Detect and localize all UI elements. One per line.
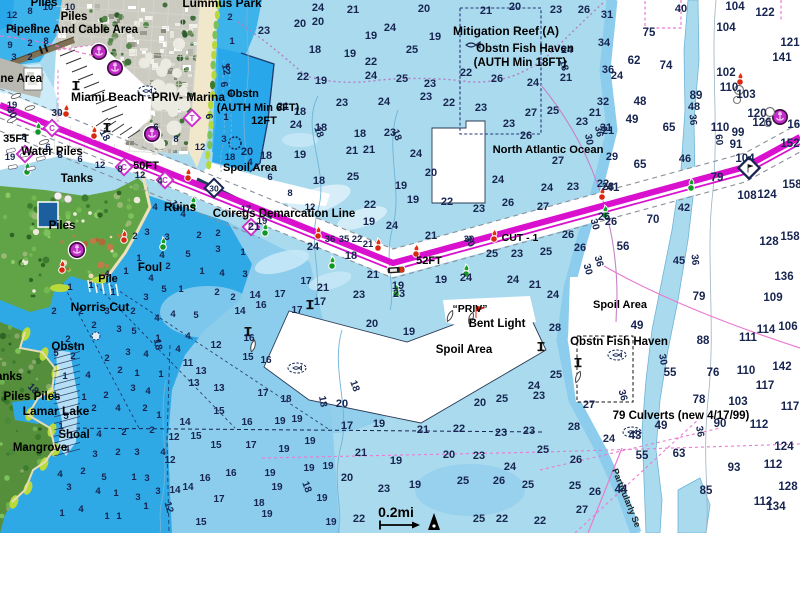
svg-text:128: 128	[759, 236, 779, 248]
svg-text:12: 12	[164, 455, 176, 466]
svg-text:19: 19	[325, 517, 337, 528]
svg-text:55: 55	[636, 450, 649, 462]
svg-text:Obstn: Obstn	[227, 88, 259, 100]
svg-text:99: 99	[732, 127, 745, 139]
svg-text:Foul: Foul	[138, 262, 162, 274]
svg-text:76: 76	[707, 367, 720, 379]
svg-text:24: 24	[410, 148, 423, 160]
svg-text:23: 23	[424, 78, 436, 90]
svg-text:4: 4	[115, 403, 121, 414]
svg-text:19: 19	[316, 493, 328, 504]
svg-text:18: 18	[313, 175, 325, 187]
svg-text:16: 16	[260, 355, 272, 366]
svg-text:26: 26	[493, 475, 505, 487]
svg-text:15: 15	[195, 517, 207, 528]
svg-text:142: 142	[772, 361, 791, 373]
svg-text:4: 4	[78, 504, 84, 515]
svg-text:13: 13	[195, 366, 207, 377]
svg-text:Obstn Fish Haven: Obstn Fish Haven	[476, 43, 574, 55]
svg-text:88: 88	[697, 335, 710, 347]
svg-text:26: 26	[502, 197, 514, 209]
svg-text:3: 3	[125, 347, 130, 358]
svg-text:23: 23	[550, 4, 562, 16]
svg-text:17: 17	[274, 289, 286, 300]
svg-text:21: 21	[346, 145, 358, 157]
svg-text:Shoal: Shoal	[58, 429, 89, 441]
svg-text:158: 158	[780, 231, 800, 243]
svg-text:20: 20	[366, 318, 378, 330]
svg-text:5: 5	[131, 326, 137, 337]
svg-text:108: 108	[737, 190, 757, 202]
svg-text:26: 26	[491, 73, 503, 85]
svg-text:56: 56	[617, 241, 630, 253]
svg-text:24: 24	[492, 174, 505, 186]
svg-text:3: 3	[92, 449, 97, 460]
svg-text:2: 2	[121, 427, 126, 438]
svg-text:(AUTH Min 18FT): (AUTH Min 18FT)	[474, 57, 567, 69]
svg-text:20: 20	[336, 398, 348, 410]
svg-text:20: 20	[474, 397, 486, 409]
svg-text:79 Culverts (new 4/17/99): 79 Culverts (new 4/17/99)	[613, 410, 750, 422]
svg-text:112: 112	[750, 419, 769, 431]
svg-text:T: T	[190, 114, 195, 123]
svg-text:“PRIV”: “PRIV”	[452, 303, 487, 315]
svg-text:36: 36	[687, 114, 699, 126]
svg-text:26: 26	[578, 4, 590, 16]
svg-text:30: 30	[51, 108, 63, 119]
svg-text:23: 23	[495, 427, 507, 439]
svg-text:23: 23	[473, 450, 485, 462]
svg-text:23: 23	[533, 390, 545, 402]
svg-text:134: 134	[766, 501, 786, 513]
svg-text:25: 25	[547, 105, 559, 117]
svg-text:North Atlantic Ocean: North Atlantic Ocean	[493, 144, 604, 156]
svg-text:1: 1	[104, 511, 110, 522]
svg-text:19: 19	[363, 216, 375, 228]
svg-text:18: 18	[309, 44, 321, 56]
svg-text:4: 4	[157, 176, 163, 187]
svg-text:25: 25	[550, 369, 562, 381]
svg-text:4: 4	[185, 331, 191, 342]
svg-text:20: 20	[509, 1, 521, 13]
svg-text:109: 109	[763, 292, 782, 304]
svg-text:120: 120	[747, 108, 766, 120]
svg-text:40: 40	[675, 3, 687, 15]
svg-text:19: 19	[291, 414, 303, 425]
svg-text:2: 2	[214, 287, 219, 298]
svg-text:104: 104	[735, 153, 755, 165]
svg-text:Bent Light: Bent Light	[469, 318, 526, 330]
svg-text:Obstn: Obstn	[51, 341, 84, 353]
svg-text:17: 17	[314, 296, 326, 308]
svg-text:17: 17	[300, 276, 312, 287]
svg-text:Tanks: Tanks	[0, 371, 22, 383]
svg-text:23: 23	[473, 203, 485, 215]
svg-text:75: 75	[643, 27, 656, 39]
svg-text:16: 16	[241, 417, 253, 428]
svg-text:26: 26	[520, 130, 532, 142]
svg-text:22: 22	[460, 67, 472, 79]
svg-text:1: 1	[158, 369, 164, 380]
svg-text:8: 8	[173, 134, 178, 145]
svg-text:35FT: 35FT	[3, 133, 29, 145]
svg-text:4: 4	[57, 469, 63, 480]
svg-text:12: 12	[195, 142, 206, 153]
svg-text:9: 9	[7, 40, 12, 51]
svg-text:49: 49	[631, 320, 644, 332]
svg-text:3: 3	[130, 383, 135, 394]
svg-text:Lummus Park: Lummus Park	[182, 0, 262, 10]
svg-text:26: 26	[574, 242, 586, 254]
svg-text:2: 2	[91, 403, 96, 414]
svg-text:13: 13	[213, 383, 225, 394]
svg-text:28: 28	[568, 421, 580, 433]
svg-text:24: 24	[290, 119, 303, 131]
svg-text:24: 24	[384, 22, 397, 34]
svg-text:19: 19	[278, 444, 290, 455]
svg-text:15: 15	[213, 406, 225, 417]
svg-text:23: 23	[336, 97, 348, 109]
svg-text:5: 5	[185, 249, 191, 260]
svg-text:24: 24	[312, 2, 325, 14]
svg-text:19: 19	[5, 152, 16, 163]
svg-text:20: 20	[341, 472, 353, 484]
svg-text:22: 22	[441, 196, 453, 208]
svg-text:2: 2	[103, 390, 108, 401]
svg-text:25: 25	[537, 444, 549, 456]
svg-text:20: 20	[312, 16, 324, 28]
svg-text:24: 24	[603, 433, 616, 445]
svg-text:110: 110	[737, 365, 756, 377]
svg-text:27: 27	[552, 155, 564, 167]
svg-text:22: 22	[352, 234, 363, 245]
svg-text:19: 19	[294, 149, 306, 161]
svg-text:21: 21	[317, 282, 329, 294]
svg-text:2: 2	[27, 52, 32, 63]
svg-text:19: 19	[322, 461, 334, 472]
svg-text:24: 24	[378, 96, 391, 108]
svg-text:19: 19	[429, 31, 441, 43]
svg-text:18: 18	[280, 394, 292, 405]
svg-text:45: 45	[673, 255, 685, 267]
svg-text:14: 14	[234, 306, 246, 317]
svg-text:25: 25	[473, 513, 485, 525]
svg-text:104: 104	[716, 22, 736, 34]
svg-text:Ruins: Ruins	[164, 202, 196, 214]
svg-text:46: 46	[679, 153, 691, 165]
svg-text:141: 141	[772, 52, 792, 64]
svg-text:17: 17	[245, 440, 257, 451]
svg-text:112: 112	[764, 459, 783, 471]
svg-text:48: 48	[634, 96, 647, 108]
svg-text:122: 122	[755, 7, 774, 19]
svg-text:24: 24	[561, 44, 573, 56]
svg-text:1: 1	[199, 266, 205, 277]
svg-text:Lamar Lake: Lamar Lake	[23, 404, 90, 418]
svg-text:2: 2	[91, 320, 96, 331]
svg-text:Mangrove: Mangrove	[13, 442, 67, 454]
svg-text:117: 117	[756, 380, 775, 392]
svg-text:27: 27	[537, 201, 549, 213]
svg-text:18: 18	[345, 250, 357, 262]
svg-text:25: 25	[406, 44, 418, 56]
svg-text:4: 4	[95, 486, 101, 497]
svg-text:24: 24	[527, 77, 540, 89]
svg-text:114: 114	[757, 324, 776, 336]
svg-text:15: 15	[190, 431, 202, 442]
svg-text:85: 85	[700, 485, 713, 497]
svg-text:19: 19	[403, 326, 415, 338]
svg-text:25: 25	[457, 475, 469, 487]
svg-text:111: 111	[739, 332, 758, 344]
svg-text:21: 21	[367, 269, 379, 281]
svg-text:19: 19	[304, 436, 316, 447]
svg-text:62: 62	[628, 55, 641, 67]
svg-text:31: 31	[601, 9, 613, 21]
svg-text:11: 11	[183, 358, 194, 369]
svg-text:5: 5	[193, 310, 199, 321]
svg-text:2: 2	[104, 353, 109, 364]
svg-text:20: 20	[425, 167, 437, 179]
svg-text:23: 23	[567, 181, 579, 193]
svg-text:3: 3	[144, 473, 149, 484]
svg-text:Water Piles: Water Piles	[21, 146, 83, 158]
svg-text:2: 2	[142, 403, 147, 414]
svg-text:24: 24	[541, 182, 554, 194]
svg-text:19: 19	[274, 416, 286, 427]
svg-text:22: 22	[443, 97, 455, 109]
svg-text:2: 2	[27, 38, 32, 49]
svg-text:19: 19	[264, 468, 276, 479]
svg-text:21: 21	[417, 424, 429, 436]
svg-text:27: 27	[576, 504, 588, 516]
svg-text:3: 3	[215, 244, 220, 255]
svg-text:124: 124	[774, 441, 794, 453]
svg-text:1: 1	[88, 280, 94, 291]
svg-text:19: 19	[365, 30, 377, 42]
svg-text:2: 2	[51, 306, 56, 317]
svg-text:1: 1	[62, 371, 68, 382]
svg-text:93: 93	[728, 462, 741, 474]
svg-text:117: 117	[781, 401, 800, 413]
svg-text:25: 25	[496, 393, 508, 405]
svg-text:2: 2	[117, 365, 122, 376]
svg-text:22: 22	[353, 513, 365, 525]
svg-text:36: 36	[602, 64, 614, 76]
svg-text:2: 2	[149, 425, 154, 436]
svg-text:21: 21	[363, 144, 375, 156]
svg-text:16: 16	[243, 333, 255, 344]
svg-text:3: 3	[116, 324, 121, 335]
svg-text:Norris Cut: Norris Cut	[71, 300, 130, 314]
svg-text:128: 128	[778, 481, 798, 493]
svg-text:5: 5	[101, 472, 107, 483]
svg-text:1: 1	[240, 247, 246, 258]
svg-text:4: 4	[170, 309, 176, 320]
svg-text:12: 12	[95, 160, 106, 171]
svg-text:44: 44	[615, 484, 628, 496]
svg-text:42: 42	[678, 202, 690, 214]
svg-text:C: C	[49, 124, 55, 133]
svg-text:3: 3	[11, 52, 16, 63]
svg-text:27: 27	[583, 399, 595, 411]
svg-text:27: 27	[525, 107, 537, 119]
svg-text:65: 65	[663, 122, 676, 134]
svg-text:103: 103	[728, 396, 747, 408]
svg-text:4: 4	[96, 429, 102, 440]
svg-text:3: 3	[66, 482, 71, 493]
svg-text:121: 121	[780, 37, 800, 49]
svg-text:16: 16	[225, 468, 237, 479]
svg-text:48: 48	[688, 101, 700, 113]
svg-text:17: 17	[341, 420, 353, 432]
svg-text:17: 17	[213, 494, 225, 505]
svg-text:2: 2	[132, 231, 137, 242]
svg-text:70: 70	[647, 214, 660, 226]
svg-text:136: 136	[774, 271, 793, 283]
svg-text:14: 14	[179, 417, 191, 428]
svg-text:ane Area: ane Area	[0, 73, 43, 85]
svg-text:21: 21	[347, 4, 359, 16]
svg-text:12FT: 12FT	[251, 115, 277, 127]
svg-text:52FT: 52FT	[416, 255, 442, 267]
svg-text:19: 19	[435, 274, 447, 286]
svg-text:4: 4	[159, 250, 165, 261]
svg-text:3: 3	[134, 447, 139, 458]
svg-text:18: 18	[260, 150, 272, 162]
svg-text:1: 1	[59, 508, 65, 519]
svg-text:32: 32	[597, 96, 609, 108]
svg-text:19: 19	[303, 463, 315, 474]
svg-text:106: 106	[778, 321, 797, 333]
svg-text:124: 124	[757, 189, 777, 201]
svg-text:Tanks: Tanks	[61, 173, 93, 185]
svg-text:22: 22	[365, 56, 377, 68]
svg-text:5: 5	[161, 284, 167, 295]
svg-text:2: 2	[80, 466, 85, 477]
svg-text:Piles: Piles	[31, 0, 58, 9]
svg-text:Obstn Fish Haven: Obstn Fish Haven	[570, 336, 668, 348]
svg-text:28: 28	[602, 181, 614, 193]
svg-text:22: 22	[496, 513, 508, 525]
svg-text:19: 19	[407, 194, 419, 206]
svg-text:21: 21	[425, 230, 437, 242]
svg-text:3: 3	[164, 232, 169, 243]
svg-text:12: 12	[168, 432, 180, 443]
svg-text:6: 6	[153, 122, 158, 133]
svg-text:20: 20	[443, 449, 455, 461]
svg-text:21: 21	[529, 279, 541, 291]
svg-text:23: 23	[393, 288, 405, 300]
svg-text:1: 1	[110, 287, 116, 298]
svg-text:34: 34	[598, 37, 611, 49]
svg-text:20: 20	[294, 18, 306, 30]
svg-text:24: 24	[386, 220, 399, 232]
svg-text:16: 16	[199, 473, 211, 484]
svg-text:23: 23	[475, 102, 487, 114]
svg-text:0.2mi: 0.2mi	[378, 504, 414, 520]
svg-text:19: 19	[344, 48, 356, 60]
svg-text:24: 24	[460, 272, 473, 284]
svg-text:23: 23	[353, 289, 365, 301]
svg-text:19: 19	[409, 479, 421, 491]
svg-text:21: 21	[363, 239, 374, 250]
svg-text:25: 25	[569, 480, 581, 492]
svg-text:60: 60	[713, 134, 725, 146]
svg-text:2: 2	[215, 228, 220, 239]
svg-text:CUT - 1: CUT - 1	[502, 232, 539, 244]
svg-text:29: 29	[606, 151, 618, 163]
svg-text:1: 1	[131, 472, 137, 483]
svg-text:24: 24	[507, 274, 520, 286]
svg-text:4: 4	[145, 386, 151, 397]
svg-text:21: 21	[589, 107, 601, 119]
svg-text:43: 43	[629, 430, 642, 442]
svg-text:22: 22	[534, 515, 546, 527]
svg-text:23: 23	[523, 425, 535, 437]
svg-text:3: 3	[135, 492, 140, 503]
svg-text:22: 22	[453, 423, 465, 435]
svg-text:17: 17	[291, 305, 303, 316]
svg-text:74: 74	[660, 60, 673, 72]
svg-text:20: 20	[418, 3, 430, 15]
svg-text:Piles: Piles	[61, 11, 88, 23]
svg-text:Spoil Area: Spoil Area	[593, 299, 648, 311]
svg-text:16: 16	[255, 300, 267, 311]
svg-text:2: 2	[130, 306, 135, 317]
svg-text:1: 1	[178, 284, 184, 295]
svg-text:Pipeline And Cable Area: Pipeline And Cable Area	[6, 24, 139, 36]
svg-text:Piles Piles: Piles Piles	[4, 391, 61, 403]
svg-text:25: 25	[486, 248, 498, 260]
svg-text:C: C	[162, 176, 168, 185]
svg-text:8: 8	[43, 36, 48, 47]
svg-text:158: 158	[782, 179, 800, 191]
svg-text:22: 22	[364, 199, 376, 211]
svg-text:24: 24	[307, 241, 320, 253]
svg-text:104: 104	[725, 1, 745, 13]
svg-text:Piles: Piles	[49, 220, 76, 232]
svg-text:18: 18	[253, 498, 265, 509]
svg-text:2: 2	[196, 230, 201, 241]
svg-text:23: 23	[503, 118, 515, 130]
svg-text:1: 1	[156, 410, 162, 421]
svg-text:14: 14	[169, 485, 181, 496]
svg-text:Pile: Pile	[98, 273, 118, 285]
svg-text:25: 25	[522, 479, 534, 491]
svg-text:65: 65	[634, 159, 647, 171]
svg-text:63: 63	[673, 448, 686, 460]
svg-text:19: 19	[395, 180, 407, 192]
svg-text:15: 15	[242, 352, 254, 363]
svg-text:19: 19	[390, 455, 402, 467]
svg-text:Miami Beach -PRIV- Marina: Miami Beach -PRIV- Marina	[71, 90, 225, 104]
svg-text:22: 22	[297, 71, 309, 83]
svg-text:1: 1	[81, 392, 87, 403]
svg-text:18: 18	[354, 128, 366, 140]
svg-text:(AUTH Min 6FT): (AUTH Min 6FT)	[217, 102, 300, 114]
svg-text:103: 103	[736, 89, 755, 101]
svg-text:3: 3	[155, 486, 160, 497]
svg-text:3: 3	[144, 227, 149, 238]
svg-text:21: 21	[560, 72, 572, 84]
svg-text:4: 4	[219, 268, 225, 279]
svg-text:8: 8	[117, 164, 122, 175]
svg-text:24: 24	[547, 289, 560, 301]
svg-text:23: 23	[258, 25, 270, 37]
svg-text:Coiregs Demarcation Line: Coiregs Demarcation Line	[213, 208, 356, 220]
svg-text:91: 91	[730, 139, 743, 151]
